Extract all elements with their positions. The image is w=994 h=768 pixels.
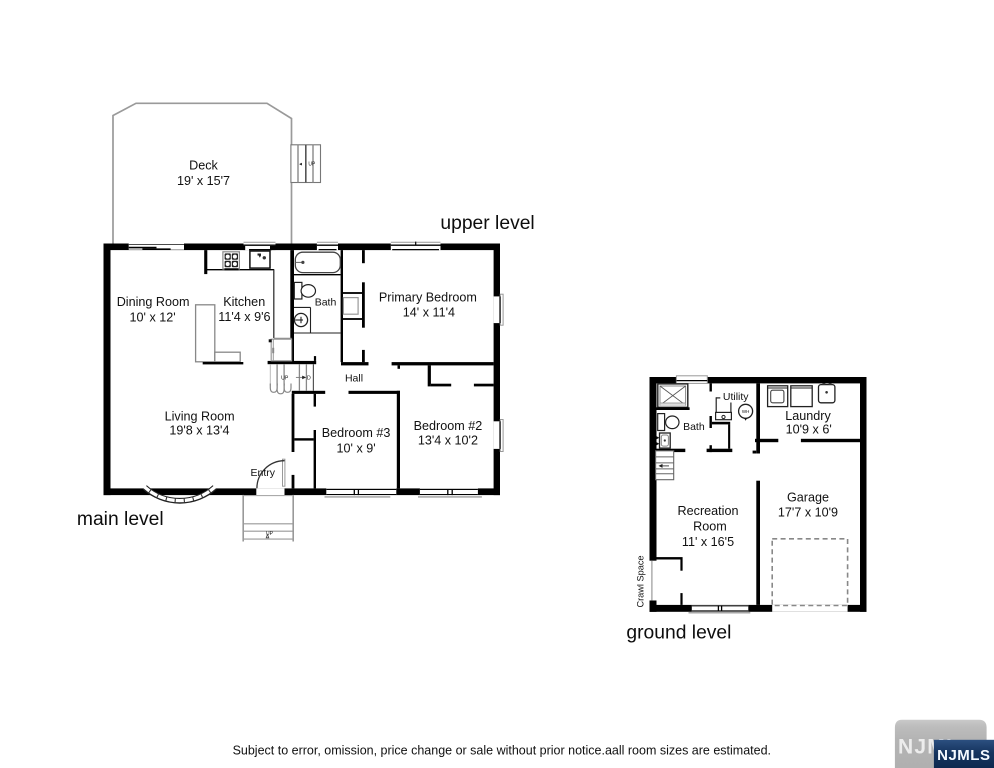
svg-text:NJMLS: NJMLS	[937, 747, 990, 764]
svg-text:19'8 x 13'4: 19'8 x 13'4	[169, 424, 229, 438]
svg-text:Deck: Deck	[189, 158, 218, 172]
svg-text:Bedroom #2: Bedroom #2	[414, 419, 483, 433]
svg-text:Crawl Space: Crawl Space	[636, 555, 646, 607]
svg-text:14' x 11'4: 14' x 11'4	[403, 306, 455, 320]
svg-text:Laundry: Laundry	[785, 409, 831, 423]
svg-text:Bath: Bath	[315, 297, 337, 309]
svg-text:◂: ◂	[299, 162, 302, 168]
svg-text:Dining Room: Dining Room	[117, 295, 190, 309]
svg-text:upper level: upper level	[440, 213, 534, 234]
svg-text:main level: main level	[77, 509, 164, 530]
svg-text:Utility: Utility	[723, 391, 749, 403]
svg-text:10' x 9': 10' x 9'	[337, 442, 376, 456]
svg-text:Primary Bedroom: Primary Bedroom	[379, 291, 477, 305]
svg-text:ground level: ground level	[626, 623, 731, 644]
svg-text:Room: Room	[693, 519, 727, 533]
svg-text:WH: WH	[742, 409, 750, 414]
svg-text:Kitchen: Kitchen	[223, 295, 265, 309]
svg-text:UP: UP	[308, 162, 316, 168]
svg-text:11' x 16'5: 11' x 16'5	[682, 535, 734, 549]
svg-text:Subject to error, omission, pr: Subject to error, omission, price change…	[233, 744, 771, 758]
svg-text:Bedroom #3: Bedroom #3	[322, 426, 391, 440]
svg-text:Hall: Hall	[345, 372, 363, 384]
svg-text:17'7 x 10'9: 17'7 x 10'9	[778, 506, 838, 520]
svg-text:11'4 x 9'6: 11'4 x 9'6	[218, 310, 270, 324]
svg-text:Bath: Bath	[683, 421, 705, 433]
svg-text:Living Room: Living Room	[165, 409, 235, 423]
svg-text:Garage: Garage	[787, 490, 829, 504]
svg-text:13'4 x 10'2: 13'4 x 10'2	[418, 434, 478, 448]
svg-text:Recreation: Recreation	[678, 504, 739, 518]
svg-text:UP: UP	[281, 376, 289, 382]
svg-text:D: D	[307, 376, 311, 382]
svg-text:10'9 x 6': 10'9 x 6'	[786, 422, 832, 436]
svg-text:10' x 12': 10' x 12'	[130, 310, 176, 324]
svg-text:Entry: Entry	[251, 467, 276, 479]
svg-text:19' x 15'7: 19' x 15'7	[177, 174, 230, 188]
